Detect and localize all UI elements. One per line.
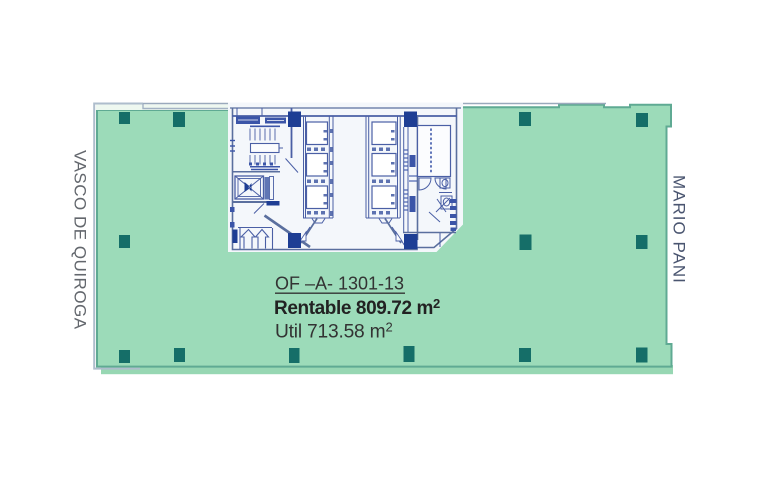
svg-text:Rentable 809.72 m2: Rentable 809.72 m2 [274,296,440,319]
svg-text:MARIO PANI: MARIO PANI [670,175,689,284]
svg-text:OF –A- 1301-13: OF –A- 1301-13 [275,274,404,294]
svg-text:VASCO DE QUIROGA: VASCO DE QUIROGA [71,150,90,330]
svg-text:Util 713.58 m2: Util 713.58 m2 [275,320,393,343]
